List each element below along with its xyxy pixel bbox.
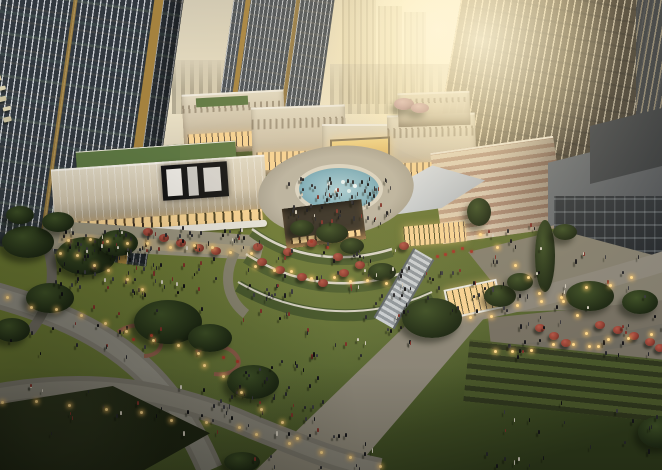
path-light <box>349 280 352 283</box>
path-light <box>80 314 83 317</box>
path-lights-layer <box>0 0 662 470</box>
path-light <box>320 451 323 454</box>
path-light <box>197 352 200 355</box>
path-light <box>222 375 225 378</box>
path-light <box>333 276 336 279</box>
path-light <box>126 278 129 281</box>
path-light <box>146 242 149 245</box>
path-light <box>650 333 653 336</box>
path-light <box>490 315 493 318</box>
path-light <box>89 238 92 241</box>
path-light <box>597 345 600 348</box>
path-light <box>6 296 9 299</box>
path-light <box>68 404 71 407</box>
path-light <box>105 408 108 411</box>
path-light <box>203 364 206 367</box>
path-light <box>250 252 253 255</box>
path-light <box>527 276 530 279</box>
path-light <box>238 426 241 429</box>
path-light <box>290 270 293 273</box>
path-light <box>211 246 214 249</box>
path-light <box>496 246 499 249</box>
path-light <box>516 304 519 307</box>
path-light <box>562 300 565 303</box>
path-light <box>511 350 514 353</box>
path-light <box>67 239 70 242</box>
aerial-rendering-scene: Aerial architectural rendering at sunset… <box>0 0 662 470</box>
path-light <box>585 286 588 289</box>
path-light <box>585 332 588 335</box>
path-light <box>273 269 276 272</box>
path-light <box>193 244 196 247</box>
path-light <box>366 279 369 282</box>
path-light <box>560 296 563 299</box>
path-light <box>552 343 555 346</box>
path-light <box>630 276 633 279</box>
path-light <box>76 254 79 257</box>
path-light <box>30 306 33 309</box>
path-light <box>125 330 128 333</box>
path-light <box>59 252 62 255</box>
path-light <box>310 277 313 280</box>
path-light <box>55 308 58 311</box>
path-light <box>141 288 144 291</box>
path-light <box>229 251 232 254</box>
path-light <box>169 246 172 249</box>
path-light <box>514 264 517 267</box>
path-light <box>106 240 109 243</box>
path-light <box>140 411 143 414</box>
path-light <box>609 284 612 287</box>
path-light <box>240 391 243 394</box>
path-light <box>255 433 258 436</box>
path-light <box>1 401 4 404</box>
path-light <box>126 242 129 245</box>
path-light <box>538 292 541 295</box>
path-light <box>107 269 110 272</box>
path-light <box>152 339 155 342</box>
path-light <box>588 345 591 348</box>
path-light <box>479 233 482 236</box>
path-light <box>540 300 543 303</box>
path-light <box>288 442 291 445</box>
path-light <box>572 343 575 346</box>
path-light <box>627 337 630 340</box>
path-light <box>205 421 208 424</box>
path-light <box>349 456 352 459</box>
path-light <box>530 349 533 352</box>
path-light <box>494 350 497 353</box>
path-light <box>379 465 382 468</box>
path-light <box>281 421 284 424</box>
path-light <box>296 437 299 440</box>
path-light <box>254 265 257 268</box>
path-light <box>260 408 263 411</box>
path-light <box>469 316 472 319</box>
path-light <box>104 322 107 325</box>
path-light <box>93 264 96 267</box>
path-light <box>177 344 180 347</box>
path-light <box>385 282 388 285</box>
path-light <box>607 338 610 341</box>
path-light <box>576 314 579 317</box>
path-light <box>35 400 38 403</box>
path-light <box>170 419 173 422</box>
